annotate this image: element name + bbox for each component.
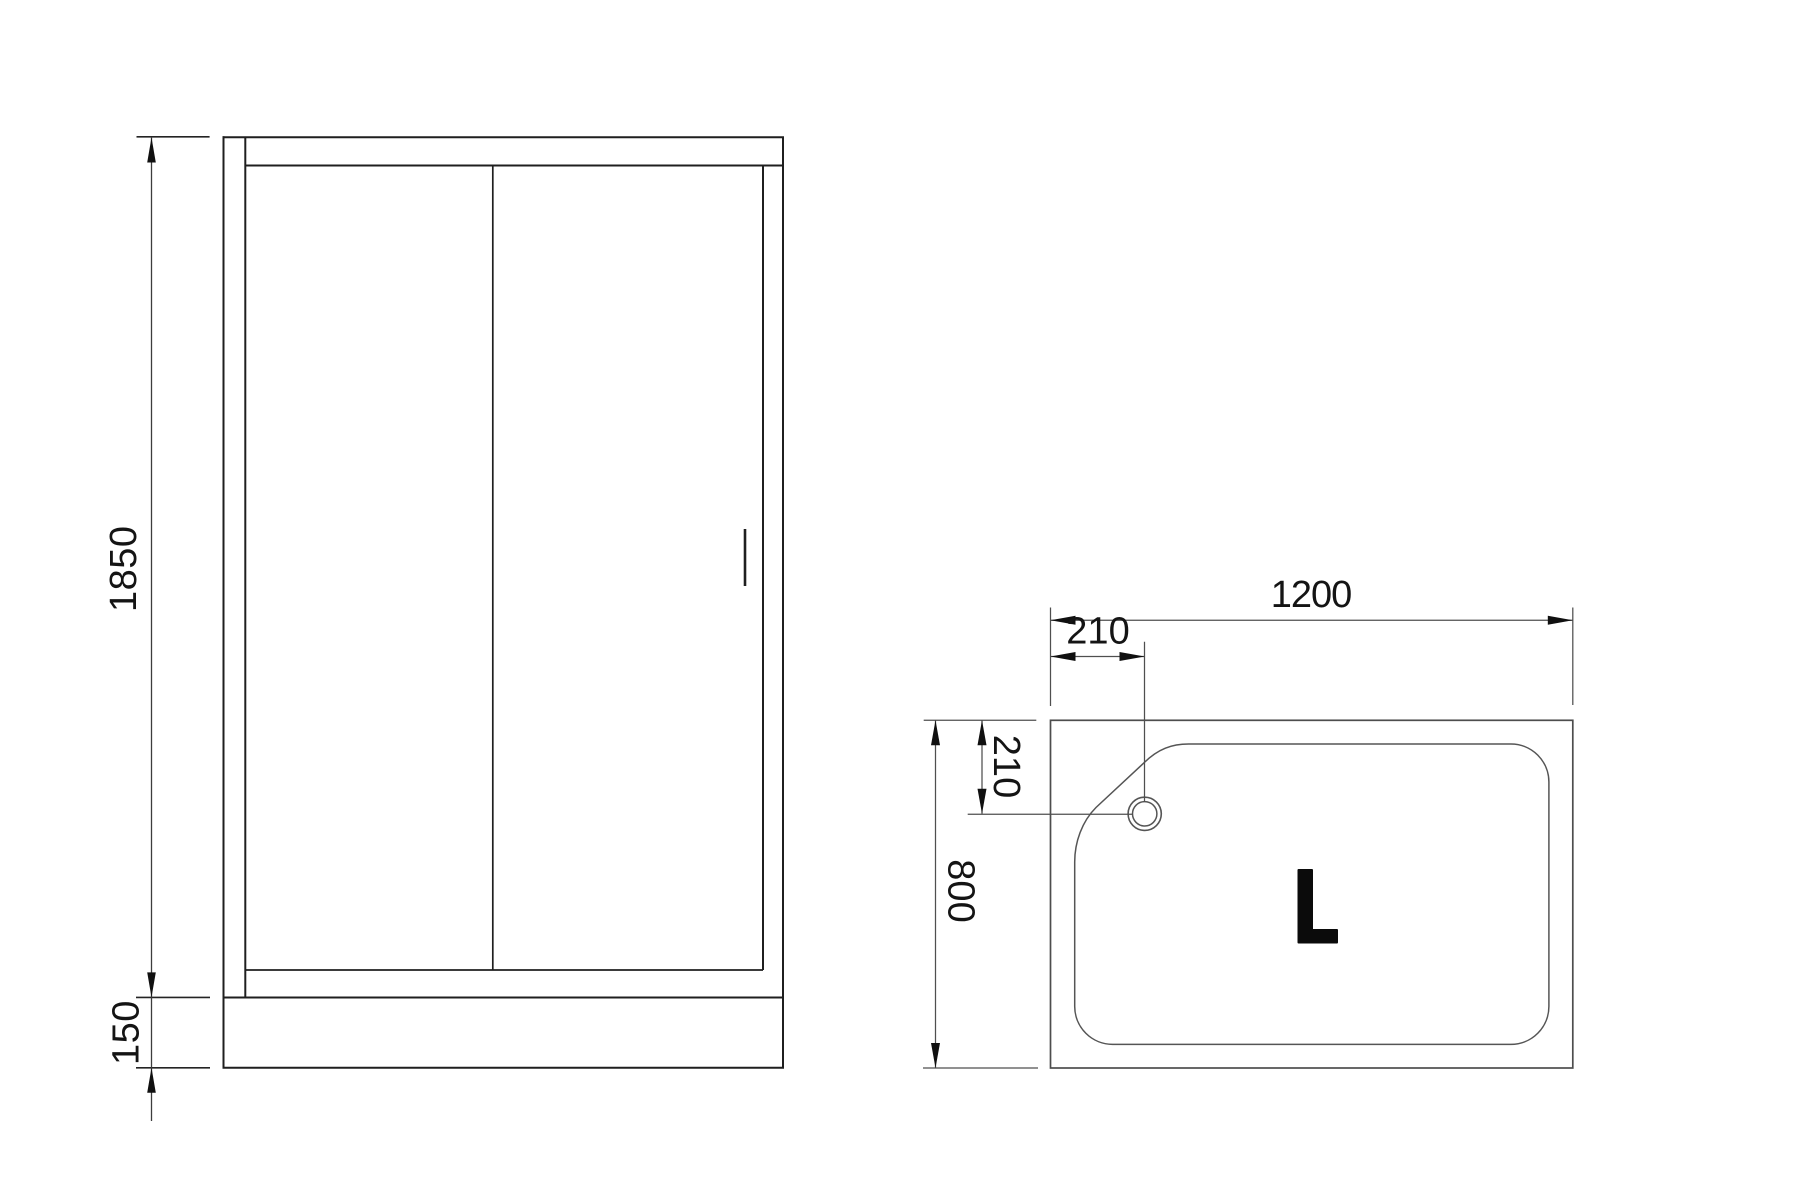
svg-text:210: 210 bbox=[985, 735, 1027, 798]
svg-text:150: 150 bbox=[106, 1000, 148, 1065]
svg-text:1850: 1850 bbox=[103, 525, 145, 612]
svg-text:1200: 1200 bbox=[1271, 574, 1352, 616]
svg-text:210: 210 bbox=[1066, 611, 1129, 653]
svg-text:800: 800 bbox=[940, 859, 982, 922]
